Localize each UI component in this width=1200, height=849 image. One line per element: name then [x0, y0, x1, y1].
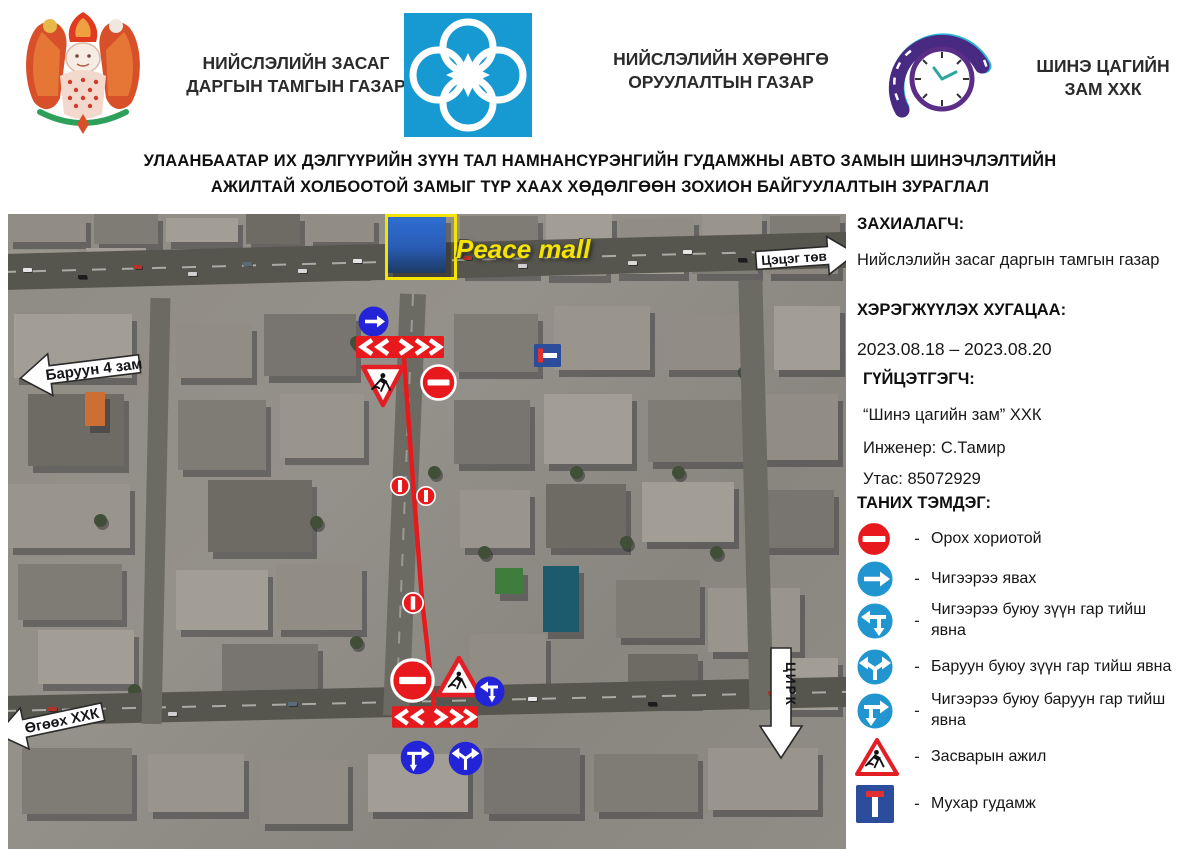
map-car: [628, 261, 637, 265]
legend-item: - Засварын ажил: [855, 737, 1181, 777]
org3-line1: ШИНЭ ЦАГИЙН: [1036, 56, 1169, 76]
peace-mall-label: Peace mall: [456, 234, 590, 265]
map-car: [23, 268, 32, 272]
map-block: [176, 324, 252, 378]
map-car: [78, 275, 87, 279]
legend-item: - Мухар гудамж: [855, 784, 1181, 824]
map-block: [308, 216, 374, 242]
map-tree: [310, 516, 323, 529]
legend-label: Орох хориотой: [931, 529, 1181, 550]
legend-label: Засварын ажил: [931, 747, 1181, 768]
map-block: [454, 314, 538, 372]
executor-label: ГҮЙЦЭТГЭГЧ:: [863, 370, 975, 389]
customer-label: ЗАХИАЛАГЧ:: [857, 215, 964, 234]
legend-label: Мухар гудамж: [931, 794, 1181, 815]
map-car: [738, 258, 747, 262]
map-tree: [672, 466, 685, 479]
org2-name: НИЙСЛЭЛИЙН ХӨРӨНГӨ ОРУУЛАЛТЫН ГАЗАР: [592, 48, 850, 95]
map-car: [528, 697, 537, 701]
org3-name: ШИНЭ ЦАГИЙН ЗАМ ХХК: [1012, 55, 1194, 102]
map-tree: [620, 536, 633, 549]
legend-label: Чигээрээ явах: [931, 569, 1181, 590]
org2-line2: ОРУУЛАЛТЫН ГАЗАР: [628, 72, 814, 92]
map-tree: [570, 466, 583, 479]
map-block: [616, 580, 700, 638]
map-block: [454, 400, 530, 464]
map-block: [166, 218, 238, 242]
direction-arrow-circus: ЦИРК: [758, 646, 804, 762]
map-block: [8, 216, 86, 242]
map-block: [264, 314, 356, 376]
map-block: [22, 748, 132, 814]
ulaanbaatar-emblem-icon: [20, 6, 146, 145]
customer-value: Нийслэлийн засаг даргын тамгын газар: [857, 249, 1182, 272]
roadwork-sign-icon: [360, 364, 406, 408]
map-block: [18, 564, 122, 620]
no-entry-small-icon: [390, 476, 410, 496]
map-block: [648, 400, 744, 462]
left-or-right-icon: [855, 647, 903, 687]
legend-item: - Чигээрээ явах: [855, 559, 1181, 599]
map-block: [38, 630, 134, 684]
dead-end-icon: [855, 784, 903, 824]
straight-or-right-icon: [855, 691, 903, 731]
map-block: [544, 394, 632, 464]
map-car: [188, 272, 197, 276]
left-or-straight-sign-icon: [474, 676, 505, 707]
map-tree: [350, 636, 363, 649]
legend-title: ТАНИХ ТЭМДЭГ:: [857, 494, 991, 513]
no-entry-sign-icon: [420, 364, 457, 401]
clock-logo-icon: [872, 20, 1010, 143]
dead-end-sign-icon: [534, 344, 561, 367]
left-or-right-sign-icon: [448, 741, 483, 776]
phone-value: Утас: 85072929: [863, 468, 981, 491]
direction-arrow-east: Цэцэг төв: [753, 230, 846, 283]
map-car: [648, 702, 657, 706]
period-value: 2023.08.18 – 2023.08.20: [857, 337, 1052, 362]
org1-name: НИЙСЛЭЛИЙН ЗАСАГ ДАРГЫН ТАМГЫН ГАЗАР: [150, 52, 442, 99]
direction-arrow-circus-label: ЦИРК: [783, 662, 798, 707]
map-block: [208, 480, 312, 552]
title-line1: УЛААНБААТАР ИХ ДЭЛГҮҮРИЙН ЗҮҮН ТАЛ НАМНА…: [144, 152, 1057, 170]
map-car: [168, 712, 177, 716]
map-block: [546, 484, 626, 548]
map-block: [148, 754, 244, 812]
map-block: [176, 570, 268, 630]
barrier-chevron-icon: [356, 336, 444, 358]
no-entry-small-icon: [402, 592, 424, 614]
investment-agency-logo-icon: [404, 13, 532, 142]
map-car: [133, 265, 142, 269]
map-block: [178, 400, 266, 470]
page-title: УЛААНБААТАР ИХ ДЭЛГҮҮРИЙН ЗҮҮН ТАЛ НАМНА…: [0, 149, 1200, 200]
west-street: [142, 298, 171, 724]
map-car: [298, 269, 307, 273]
engineer-value: Инженер: С.Тамир: [863, 437, 1006, 460]
map-block: [94, 214, 158, 244]
map-block: [260, 760, 348, 824]
map-block: [276, 564, 362, 630]
map-block: [594, 754, 698, 812]
legend-label: Баруун буюу зүүн гар тийш явна: [931, 657, 1181, 678]
map-car: [683, 250, 692, 254]
period-label: ХЭРЭГЖҮҮЛЭХ ХУГАЦАА:: [857, 301, 1066, 320]
executor-value: “Шинэ цагийн зам” ХХК: [863, 404, 1042, 427]
straight-or-left-icon: [855, 601, 903, 641]
no-entry-icon: [855, 520, 903, 558]
map-block: [543, 566, 579, 632]
map-car: [353, 259, 362, 263]
map-block: [642, 482, 734, 542]
map-block: [460, 490, 530, 548]
no-entry-small-icon: [416, 486, 436, 506]
org1-line2: ДАРГЫН ТАМГЫН ГАЗАР: [186, 76, 405, 96]
map-car: [243, 262, 252, 266]
title-line2: АЖИЛТАЙ ХОЛБООТОЙ ЗАМЫГ ТҮР ХААХ ХӨДӨЛГӨ…: [211, 178, 989, 196]
map-block: [28, 394, 124, 466]
no-entry-sign-icon: [390, 658, 435, 703]
satellite-map: Peace mall: [8, 214, 846, 849]
map-tree: [94, 514, 107, 527]
map-block: [8, 484, 130, 548]
map-car: [288, 702, 297, 706]
go-straight-icon: [855, 559, 903, 599]
roadwork-icon: [855, 737, 903, 777]
org3-line2: ЗАМ ХХК: [1064, 79, 1141, 99]
legend-label: Чигээрээ буюу зүүн гар тийш явна: [931, 600, 1181, 642]
map-block: [756, 394, 838, 460]
map-block: [85, 392, 105, 426]
legend-item: - Орох хориотой: [855, 520, 1181, 558]
map-tree: [428, 466, 441, 479]
go-straight-sign-icon: [358, 306, 389, 337]
map-block: [554, 306, 650, 370]
map-block: [774, 306, 840, 370]
peace-mall-highlight-box: [385, 214, 457, 280]
map-block: [280, 394, 364, 458]
legend-item: - Чигээрээ буюу зүүн гар тийш явна: [855, 600, 1181, 642]
barrier-chevron-icon: [392, 706, 478, 728]
legend-item: - Чигээрээ буюу баруун гар тийш явна: [855, 690, 1181, 732]
legend-label: Чигээрээ буюу баруун гар тийш явна: [931, 690, 1181, 732]
org2-line1: НИЙСЛЭЛИЙН ХӨРӨНГӨ: [613, 49, 829, 69]
map-block: [484, 748, 580, 814]
map-block: [246, 214, 300, 244]
map-block: [495, 568, 523, 594]
map-tree: [710, 546, 723, 559]
legend-item: - Баруун буюу зүүн гар тийш явна: [855, 647, 1181, 687]
org1-line1: НИЙСЛЭЛИЙН ЗАСАГ: [203, 53, 390, 73]
map-tree: [478, 546, 491, 559]
straight-or-right-sign-icon: [400, 740, 435, 775]
